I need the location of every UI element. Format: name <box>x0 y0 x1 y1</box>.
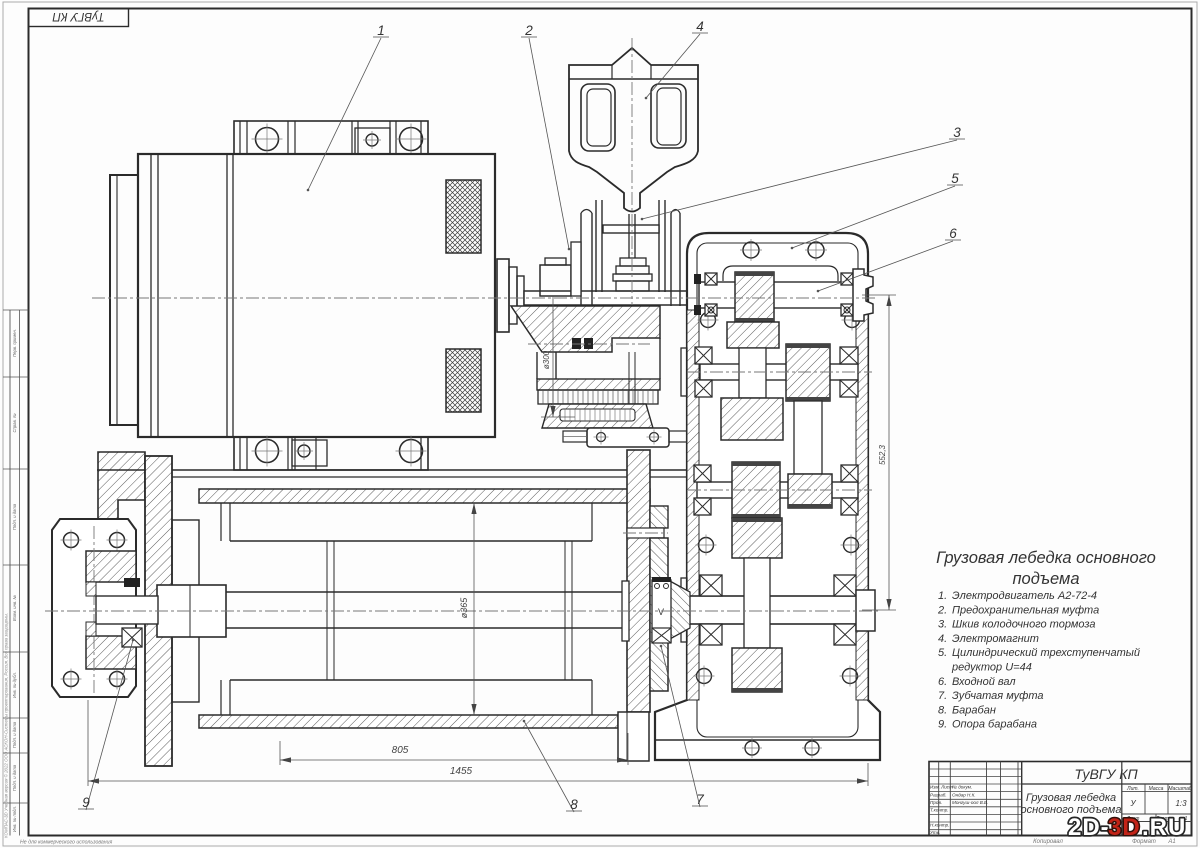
svg-text:3.: 3. <box>938 619 947 631</box>
svg-text:Входной вал: Входной вал <box>952 676 1016 688</box>
svg-text:ТуВГУ КП: ТуВГУ КП <box>1074 766 1138 782</box>
svg-text:Т.контр.: Т.контр. <box>930 808 949 813</box>
svg-text:Инв. № подл.: Инв. № подл. <box>12 806 17 832</box>
svg-text:V: V <box>658 607 664 617</box>
svg-text:9.: 9. <box>938 719 947 731</box>
svg-text:Грузовая лебедка основного: Грузовая лебедка основного <box>936 549 1156 567</box>
svg-text:КОМПАС-3D Учебная версия © 202: КОМПАС-3D Учебная версия © 2022 ООО АСКО… <box>4 613 9 838</box>
svg-text:Опора барабана: Опора барабана <box>952 719 1037 731</box>
svg-text:Масса: Масса <box>1149 786 1164 792</box>
svg-text:Цилиндрический трехступенчатый: Цилиндрический трехступенчатый <box>952 647 1140 659</box>
svg-text:Монгуш-оол В.В.: Монгуш-оол В.В. <box>952 800 988 805</box>
svg-text:3D: 3D <box>1108 814 1141 841</box>
svg-text:Грузовая лебедка: Грузовая лебедка <box>1026 792 1116 804</box>
svg-text:ø300: ø300 <box>542 350 551 369</box>
svg-text:Масштаб: Масштаб <box>1168 786 1192 792</box>
svg-text:5: 5 <box>951 171 959 186</box>
svg-text:8: 8 <box>570 797 578 812</box>
svg-text:Электромагнит: Электромагнит <box>952 633 1039 645</box>
svg-text:Копировал: Копировал <box>1033 839 1063 845</box>
svg-text:9: 9 <box>82 795 90 810</box>
svg-text:1.: 1. <box>938 590 947 602</box>
svg-text:Разраб.: Разраб. <box>930 793 947 798</box>
svg-text:552,3: 552,3 <box>878 444 887 465</box>
svg-text:Шкив колодочного тормоза: Шкив колодочного тормоза <box>952 619 1095 631</box>
svg-text:8.: 8. <box>938 704 947 716</box>
svg-text:Электродвигатель А2-72-4: Электродвигатель А2-72-4 <box>952 590 1097 602</box>
svg-text:805: 805 <box>392 745 409 756</box>
svg-text:2: 2 <box>524 23 533 38</box>
svg-text:Взам. инв. №: Взам. инв. № <box>12 595 17 621</box>
svg-text:ТуВГУ КП: ТуВГУ КП <box>52 10 105 22</box>
svg-text:7.: 7. <box>938 690 947 702</box>
svg-text:1: 1 <box>377 23 385 38</box>
svg-text:2.: 2. <box>937 604 947 616</box>
svg-text:Н.контр.: Н.контр. <box>930 823 949 828</box>
svg-text:1:3: 1:3 <box>1175 799 1187 808</box>
svg-text:редуктор U=44: редуктор U=44 <box>951 662 1032 674</box>
svg-text:3: 3 <box>953 125 961 140</box>
svg-text:ø365: ø365 <box>459 597 469 619</box>
svg-text:Ондар Н.К.: Ондар Н.К. <box>952 793 976 798</box>
svg-text:5.: 5. <box>938 647 947 659</box>
svg-text:4: 4 <box>696 19 704 34</box>
svg-text:Барабан: Барабан <box>952 704 996 716</box>
svg-text:.RU: .RU <box>1142 814 1186 841</box>
svg-text:1455: 1455 <box>450 766 473 777</box>
svg-text:6.: 6. <box>938 676 947 688</box>
svg-text:У: У <box>1129 799 1136 808</box>
svg-text:6: 6 <box>949 226 957 241</box>
svg-text:Изм. Лист: Изм. Лист <box>930 785 953 790</box>
svg-text:Подп. и дата: Подп. и дата <box>12 721 17 748</box>
svg-text:Предохранительная муфта: Предохранительная муфта <box>952 604 1099 616</box>
svg-text:№ докум.: № докум. <box>952 785 972 790</box>
svg-text:Подп. и дата: Подп. и дата <box>12 503 17 530</box>
svg-text:4.: 4. <box>938 633 947 645</box>
svg-text:7: 7 <box>696 792 704 807</box>
svg-text:Справ. №: Справ. № <box>12 413 17 432</box>
svg-text:Не для коммерческого использов: Не для коммерческого использования <box>20 840 113 846</box>
svg-text:Пров.: Пров. <box>930 800 942 805</box>
svg-text:Перв. примен.: Перв. примен. <box>12 329 17 357</box>
svg-text:Утв.: Утв. <box>930 830 940 835</box>
svg-text:Инв. № дубл.: Инв. № дубл. <box>12 672 17 698</box>
svg-text:2D-: 2D- <box>1068 814 1110 841</box>
svg-text:подъема: подъема <box>1012 570 1079 588</box>
svg-text:Подп. и дата: Подп. и дата <box>12 764 17 791</box>
svg-text:Лит.: Лит. <box>1126 786 1139 792</box>
svg-text:Зубчатая муфта: Зубчатая муфта <box>952 690 1043 702</box>
